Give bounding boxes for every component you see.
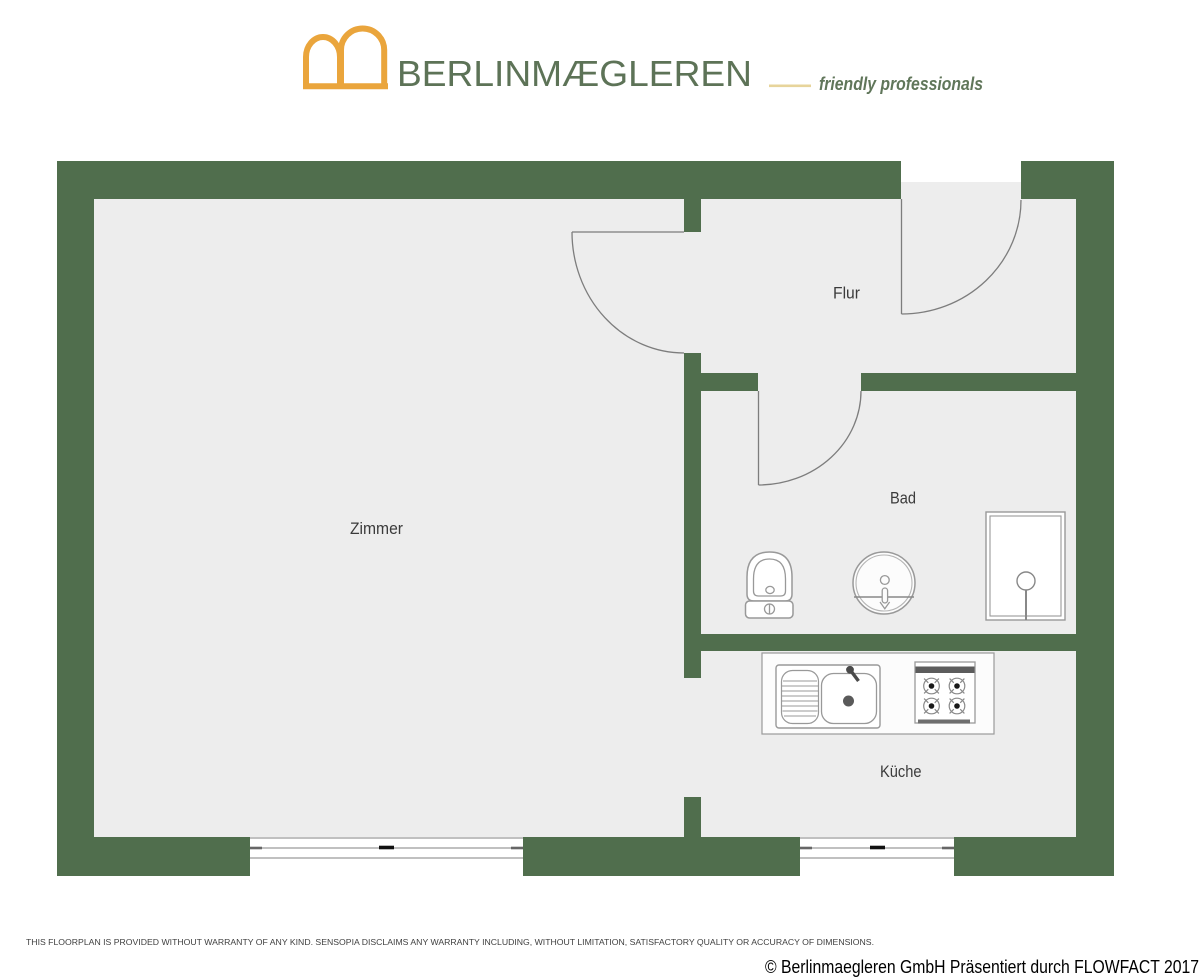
svg-text:Bad: Bad [890,489,916,508]
svg-text:Zimmer: Zimmer [350,519,403,538]
svg-text:BERLINMÆGLEREN: BERLINMÆGLEREN [397,53,752,94]
svg-text:© Berlinmaegleren GmbH Präsent: © Berlinmaegleren GmbH Präsentiert durch… [765,957,1199,977]
svg-text:Küche: Küche [880,762,922,781]
svg-text:Flur: Flur [833,284,860,303]
svg-text:THIS FLOORPLAN IS PROVIDED WIT: THIS FLOORPLAN IS PROVIDED WITHOUT WARRA… [26,938,874,947]
svg-text:friendly professionals: friendly professionals [819,74,983,94]
